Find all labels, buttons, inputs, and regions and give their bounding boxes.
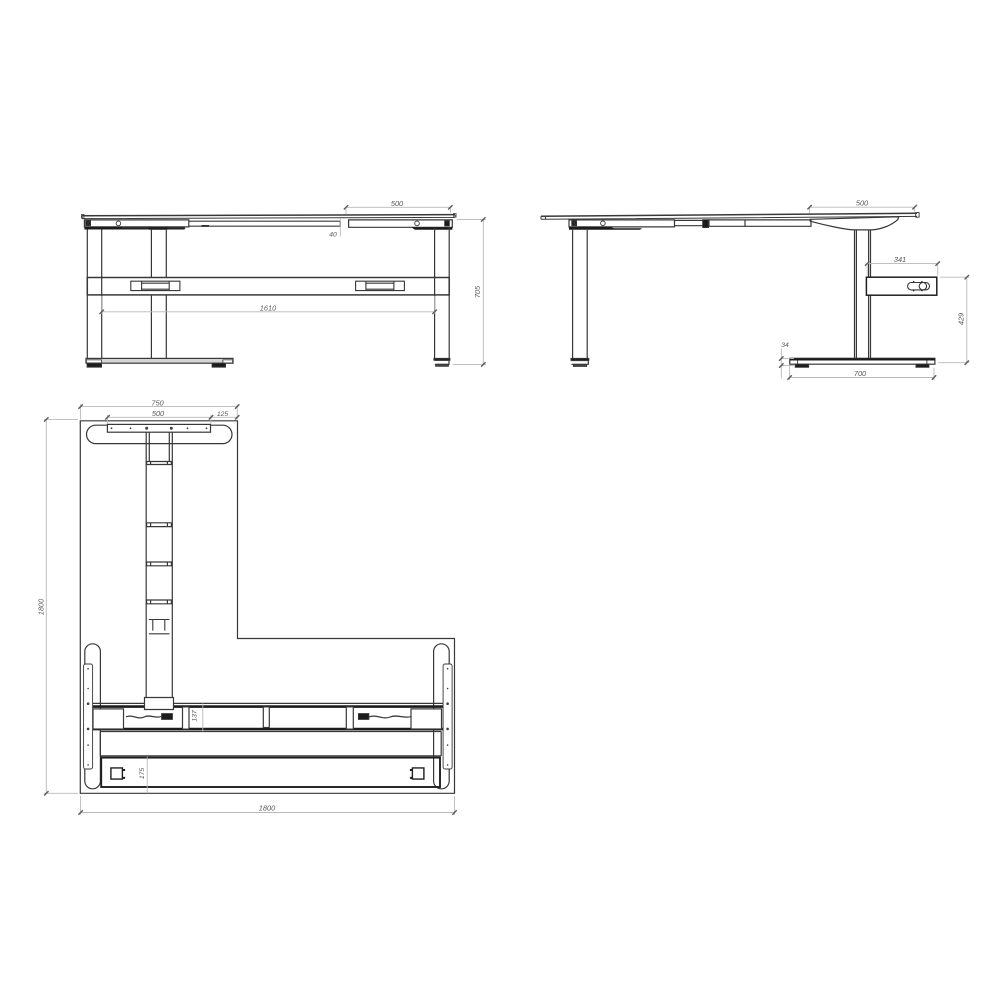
svg-text:1610: 1610 bbox=[260, 304, 277, 313]
svg-text:1800: 1800 bbox=[37, 598, 46, 615]
svg-text:34: 34 bbox=[781, 342, 789, 349]
svg-text:500: 500 bbox=[391, 199, 404, 208]
svg-text:705: 705 bbox=[473, 285, 482, 298]
svg-text:137: 137 bbox=[192, 710, 199, 722]
svg-text:40: 40 bbox=[329, 232, 337, 239]
svg-text:700: 700 bbox=[854, 369, 867, 378]
svg-text:175: 175 bbox=[139, 768, 146, 780]
svg-text:1800: 1800 bbox=[259, 804, 276, 813]
svg-text:500: 500 bbox=[856, 199, 869, 208]
svg-text:750: 750 bbox=[151, 398, 164, 407]
svg-text:429: 429 bbox=[957, 313, 966, 325]
svg-text:341: 341 bbox=[894, 255, 906, 264]
svg-text:500: 500 bbox=[152, 409, 165, 418]
svg-text:125: 125 bbox=[217, 411, 229, 418]
